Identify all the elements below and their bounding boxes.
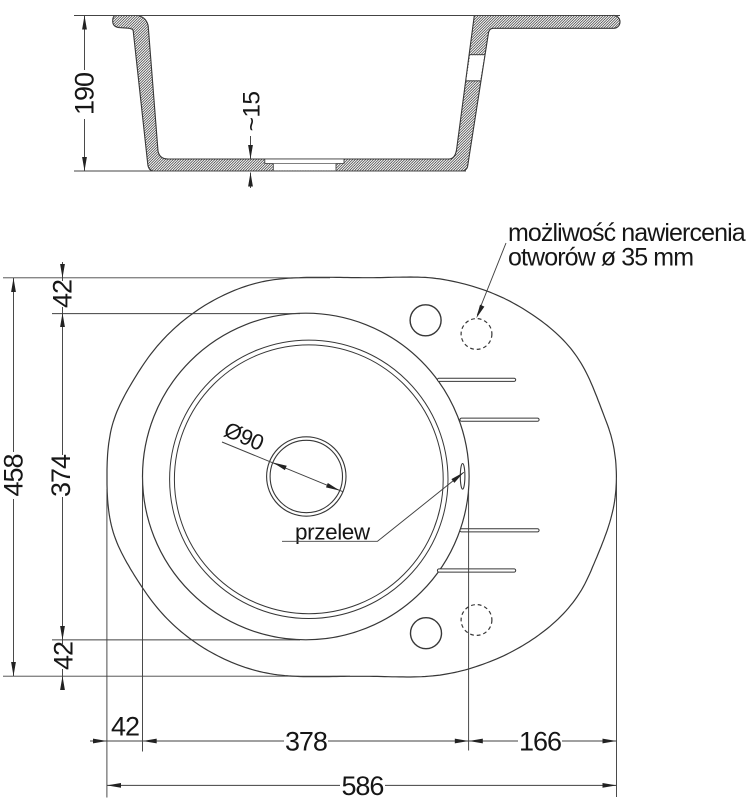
svg-text:przelew: przelew (295, 520, 371, 545)
svg-text:166: 166 (519, 726, 561, 756)
svg-text:42: 42 (49, 642, 79, 670)
svg-text:458: 458 (0, 455, 29, 497)
svg-text:190: 190 (70, 73, 100, 115)
svg-text:374: 374 (46, 454, 76, 497)
svg-text:378: 378 (285, 726, 327, 756)
svg-text:586: 586 (341, 771, 383, 800)
svg-text:42: 42 (111, 712, 139, 742)
svg-text:otworów ø 35 mm: otworów ø 35 mm (508, 244, 693, 272)
svg-text:~15: ~15 (239, 92, 266, 132)
svg-text:42: 42 (48, 280, 78, 308)
